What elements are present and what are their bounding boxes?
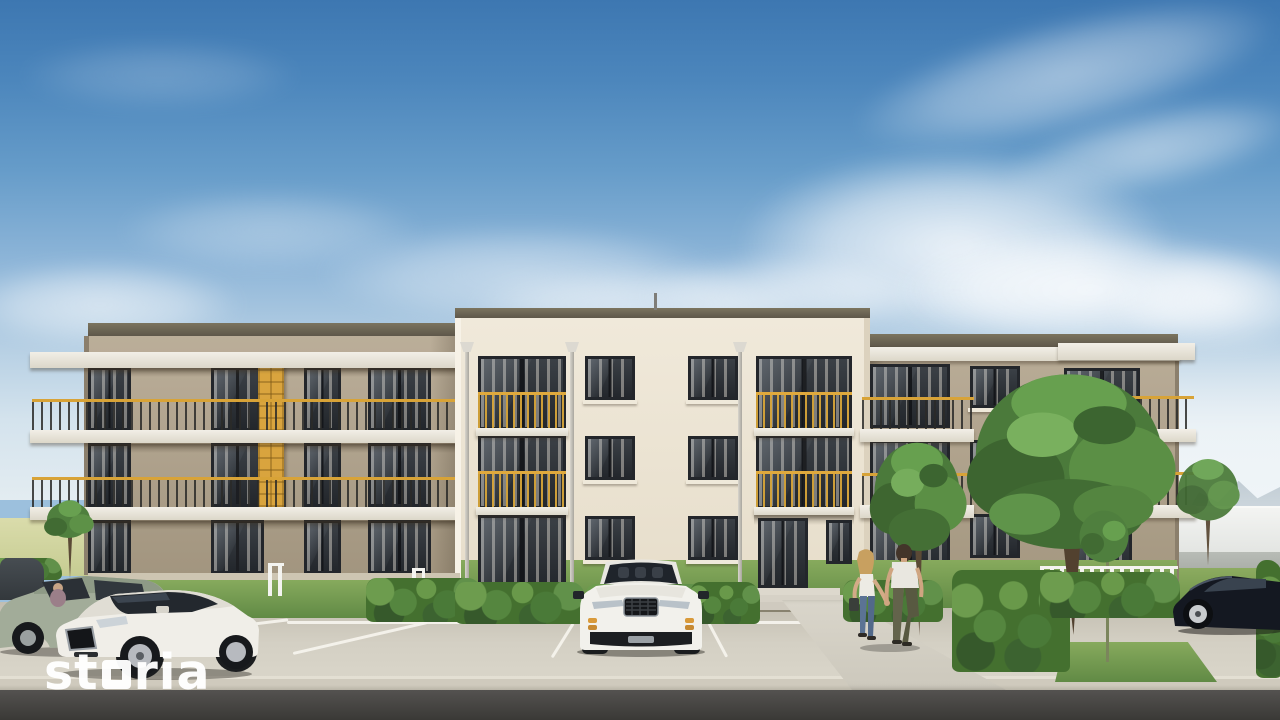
roof-antenna (654, 293, 657, 310)
window (585, 356, 635, 400)
loggia-slab (476, 428, 568, 436)
car-black-coupe (1170, 570, 1280, 636)
watermark-suffix: ria (134, 644, 211, 701)
slab-shadow (88, 521, 457, 530)
watermark-square-o (102, 660, 131, 689)
woman-walking (849, 549, 887, 640)
downspout-pipe (465, 352, 469, 592)
window (585, 436, 635, 480)
picket-gate (268, 563, 284, 596)
window (688, 356, 738, 400)
car-white-suv (570, 554, 712, 658)
window (688, 436, 738, 480)
balcony-slab (30, 430, 458, 443)
window-sill (686, 480, 740, 484)
window-sill (583, 400, 637, 404)
roof-slab (30, 352, 458, 368)
entrance-step (752, 588, 840, 595)
architectural-render-photo: stria (0, 0, 1280, 720)
walking-couple (842, 544, 938, 656)
loggia-slab (476, 507, 568, 515)
center-block-parapet (455, 308, 870, 318)
window-sill (583, 480, 637, 484)
storia-watermark: stria (44, 644, 211, 701)
loggia-slab (754, 507, 854, 515)
hedge-along-fence (1040, 572, 1180, 618)
hedge (455, 582, 585, 624)
corner-balcony-canopy (1058, 343, 1195, 360)
terrace-glazing (478, 515, 566, 590)
entrance-door (758, 518, 808, 588)
downspout-pipe (738, 352, 742, 592)
man-walking (884, 544, 922, 646)
sapling-canopy (1068, 502, 1140, 574)
window-sill (686, 400, 740, 404)
cloud-wisp (20, 40, 300, 110)
left-wing-roof-parapet (88, 323, 457, 336)
watermark-prefix: st (44, 644, 99, 701)
loggia-slab (754, 428, 854, 436)
center-block-left-return (455, 318, 461, 602)
tree-distant (1164, 455, 1252, 567)
